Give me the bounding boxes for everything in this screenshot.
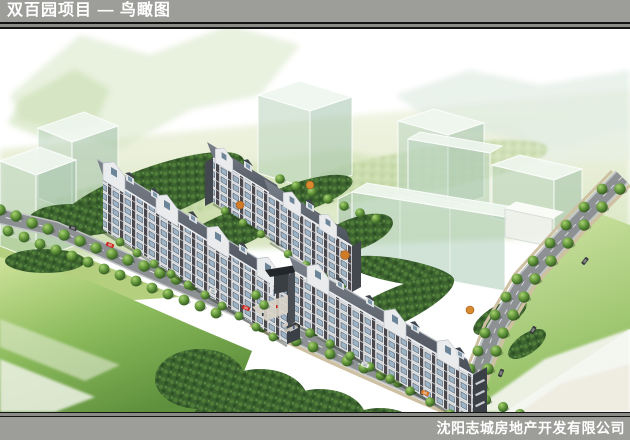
page-title: 双百园项目 — 鸟瞰图 xyxy=(7,2,171,19)
top-divider xyxy=(0,22,630,29)
glass-box xyxy=(258,81,352,189)
aerial-rendering xyxy=(0,29,630,412)
credit-bar: 沈阳志城房地产开发有限公司 xyxy=(0,417,630,440)
company-name: 沈阳志城房地产开发有限公司 xyxy=(437,420,626,436)
title-bar: 双百园项目 — 鸟瞰图 xyxy=(0,0,630,22)
presentation-board: 双百园项目 — 鸟瞰图 xyxy=(0,0,630,440)
